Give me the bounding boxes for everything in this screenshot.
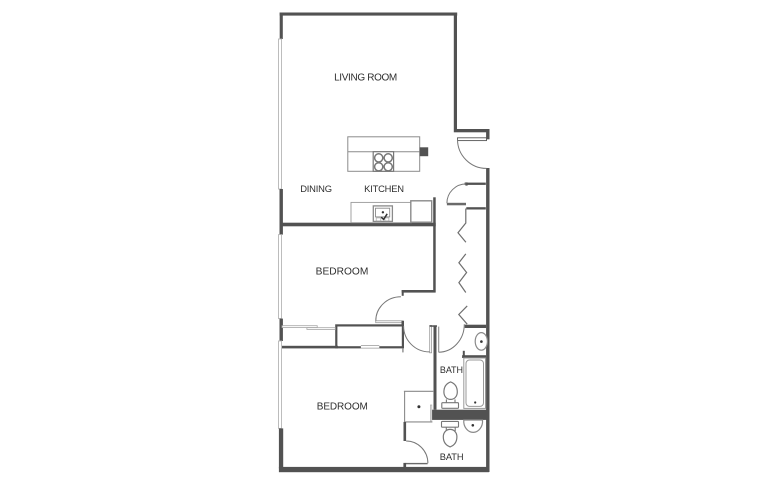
svg-text:BATH: BATH [440, 365, 463, 375]
svg-text:DINING: DINING [300, 183, 332, 194]
svg-text:BATH: BATH [440, 452, 464, 462]
svg-text:LIVING ROOM: LIVING ROOM [334, 72, 397, 83]
svg-text:BEDROOM: BEDROOM [317, 402, 368, 413]
svg-text:BEDROOM: BEDROOM [316, 267, 369, 278]
svg-text:KITCHEN: KITCHEN [364, 183, 404, 194]
